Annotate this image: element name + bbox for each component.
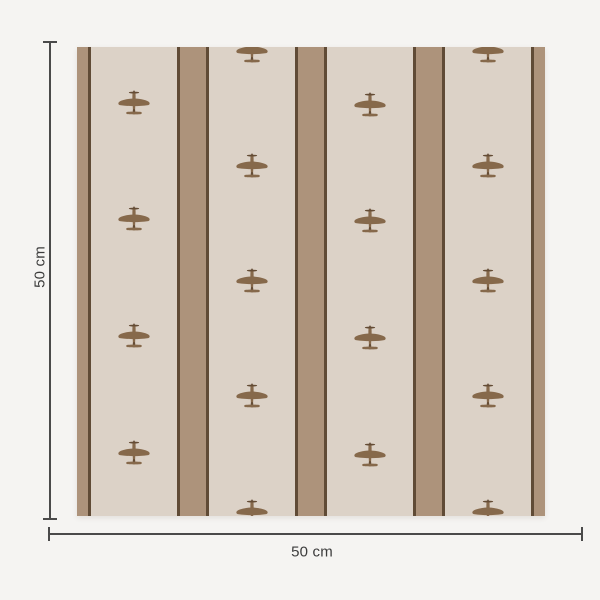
stripe-tan	[180, 47, 206, 516]
wallpaper-swatch	[77, 47, 545, 516]
swatch-pattern-image	[77, 47, 545, 516]
stripe-tan	[534, 47, 545, 516]
stripe-dark	[413, 47, 416, 516]
height-dimension-cap-top	[43, 41, 57, 43]
stripe-tan	[416, 47, 442, 516]
width-dimension-cap-left	[48, 527, 50, 541]
stripe-dark	[88, 47, 91, 516]
stripe-dark	[295, 47, 298, 516]
height-dimension-cap-bottom	[43, 518, 57, 520]
stripe-dark	[531, 47, 534, 516]
stripe-tan	[298, 47, 324, 516]
width-dimension-label: 50 cm	[291, 544, 333, 561]
stripe-dark	[206, 47, 209, 516]
height-dimension-line	[49, 42, 51, 520]
stripe-dark	[177, 47, 180, 516]
stripe-dark	[442, 47, 445, 516]
width-dimension-line	[49, 533, 583, 535]
height-dimension-label: 50 cm	[32, 246, 49, 288]
stripe-tan	[77, 47, 88, 516]
product-dimension-diagram: 50 cm 50 cm	[0, 0, 600, 600]
stripe-dark	[324, 47, 327, 516]
width-dimension-cap-right	[581, 527, 583, 541]
